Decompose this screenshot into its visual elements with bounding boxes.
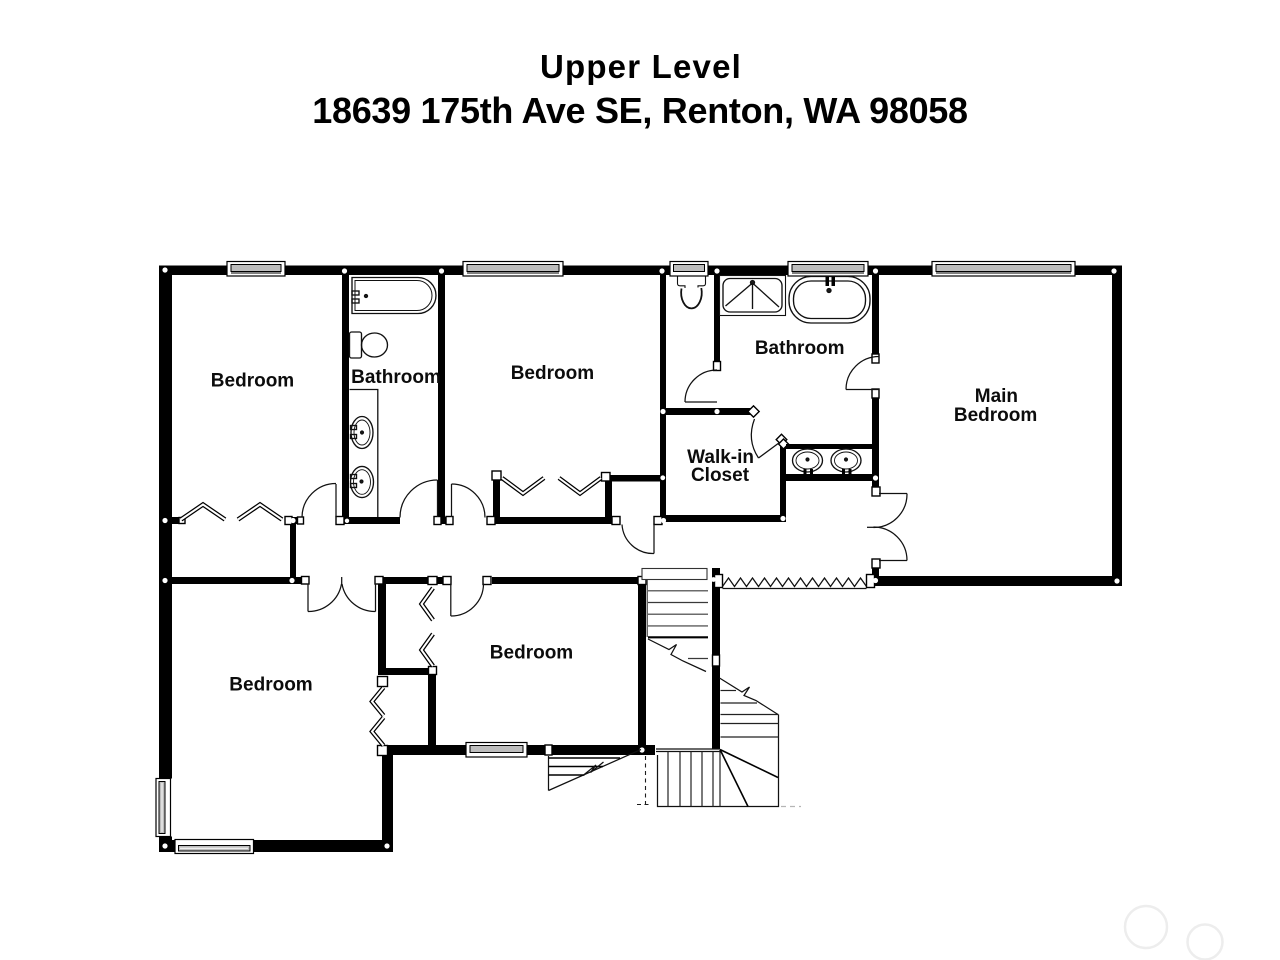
svg-text:Bedroom: Bedroom [229,675,312,696]
svg-text:Closet: Closet [691,465,750,486]
svg-text:Bathroom: Bathroom [351,367,441,388]
svg-text:Bedroom: Bedroom [490,643,573,664]
svg-text:Bathroom: Bathroom [755,338,845,359]
svg-text:Upper Level: Upper Level [540,48,742,85]
svg-text:Bedroom: Bedroom [954,405,1037,426]
svg-text:Bedroom: Bedroom [511,363,594,384]
svg-text:Main: Main [975,386,1018,407]
svg-text:Bedroom: Bedroom [211,371,294,392]
svg-text:18639 175th Ave SE, Renton, WA: 18639 175th Ave SE, Renton, WA 98058 [312,90,968,131]
